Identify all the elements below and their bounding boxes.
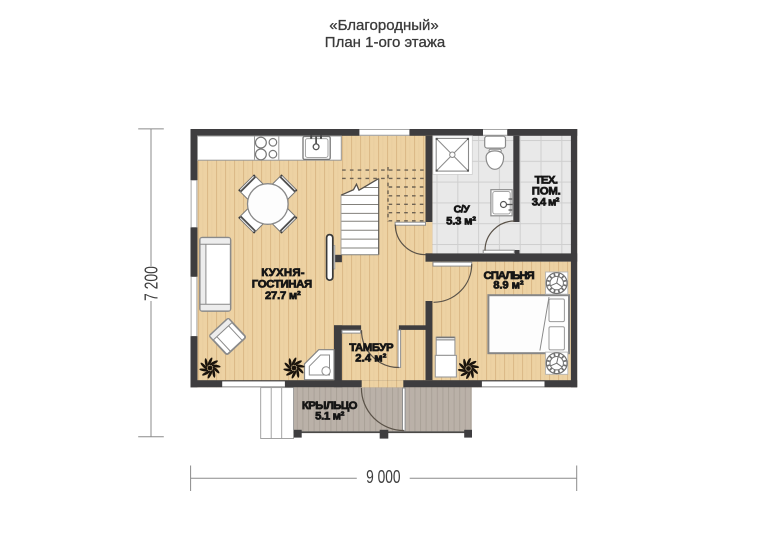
- svg-text:2.4 м²: 2.4 м²: [355, 353, 386, 365]
- svg-text:7 200: 7 200: [142, 266, 162, 301]
- svg-text:8.9 м²: 8.9 м²: [493, 280, 524, 292]
- svg-text:«Благородный»: «Благородный»: [329, 17, 439, 34]
- svg-text:5.1 м²: 5.1 м²: [315, 410, 345, 422]
- svg-text:С/У: С/У: [454, 204, 471, 216]
- svg-text:ГОСТИНАЯ: ГОСТИНАЯ: [252, 279, 312, 291]
- svg-text:9 000: 9 000: [366, 467, 400, 488]
- svg-text:3.4 м²: 3.4 м²: [532, 196, 560, 208]
- svg-text:План 1-ого этажа: План 1-ого этажа: [325, 34, 446, 51]
- svg-text:5.3 м²: 5.3 м²: [446, 215, 476, 227]
- svg-text:КУХНЯ-: КУХНЯ-: [261, 267, 305, 279]
- svg-text:27.7 м²: 27.7 м²: [265, 290, 301, 302]
